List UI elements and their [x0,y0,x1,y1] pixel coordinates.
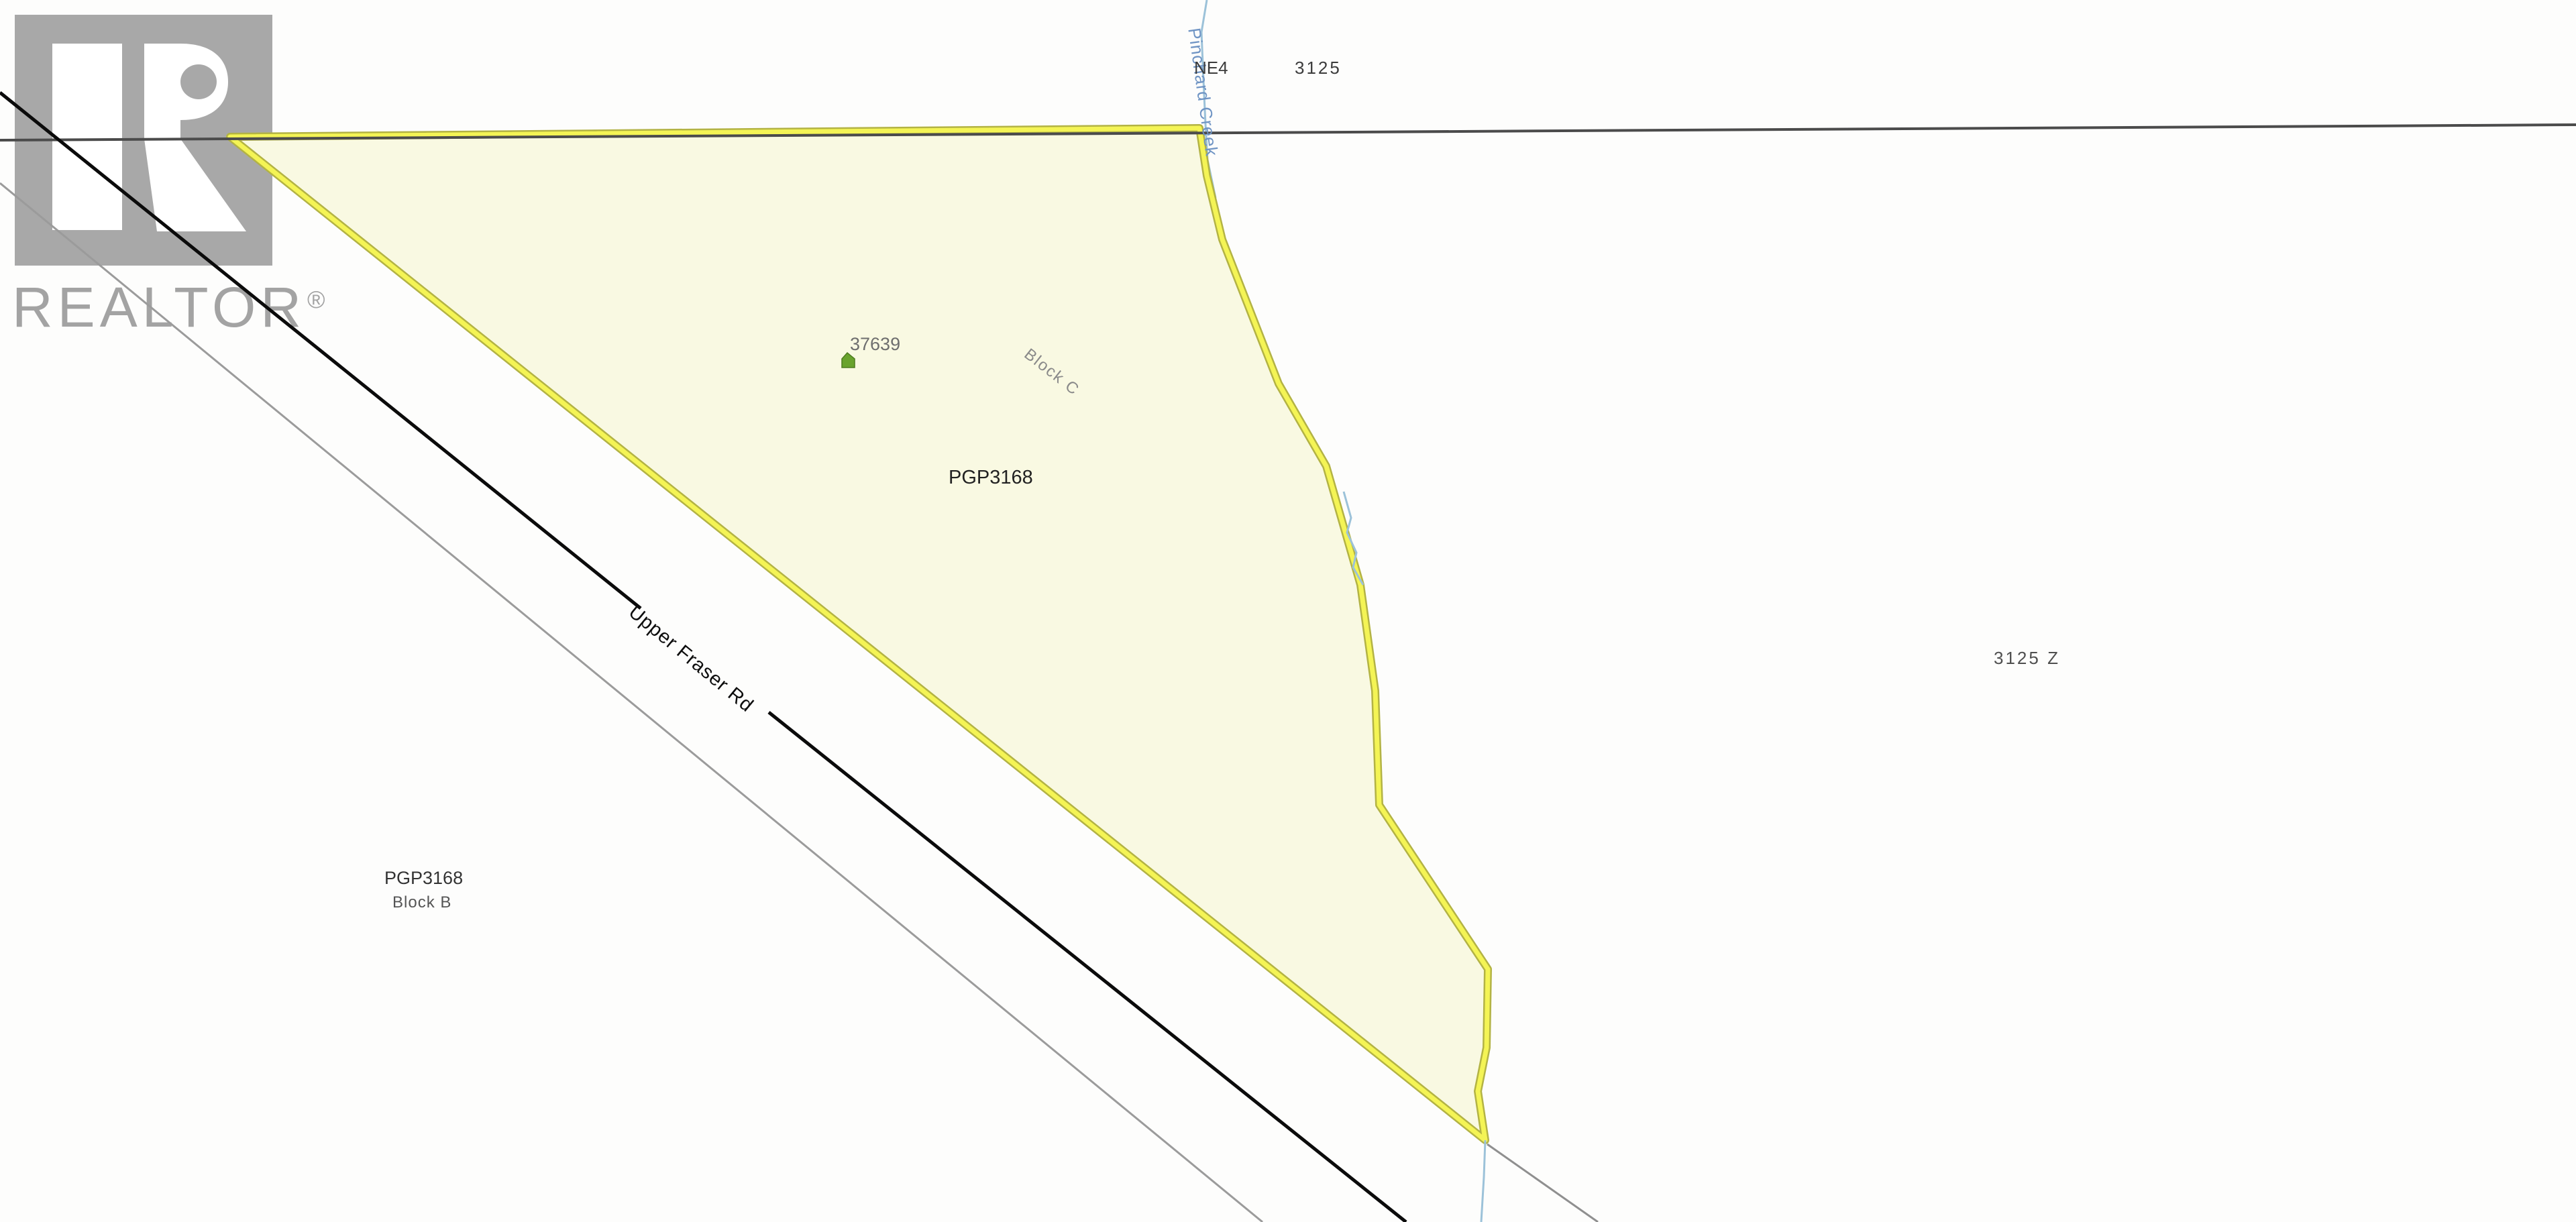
label-block-b: Block B [392,895,451,911]
creek-line-lower [1481,1140,1485,1222]
parcel-polygon [230,128,1488,1140]
plan-number-label: PGP3168 [949,468,1033,488]
map-geometry [0,0,2576,1222]
label-section-top: 3125 [1295,59,1342,76]
plan-number-label-bottom: PGP3168 [384,869,463,887]
label-section-right: 3125 Z [1994,649,2060,667]
parcel-outline-casing [230,128,1488,1140]
map-canvas: REALTOR® Pinchard Creek NE4 3125 3125 Z … [0,0,2576,1222]
parcel-pin-label: 37639 [850,335,900,353]
label-quarter-section: NE4 [1194,59,1228,76]
lot-line [1487,1144,1598,1222]
